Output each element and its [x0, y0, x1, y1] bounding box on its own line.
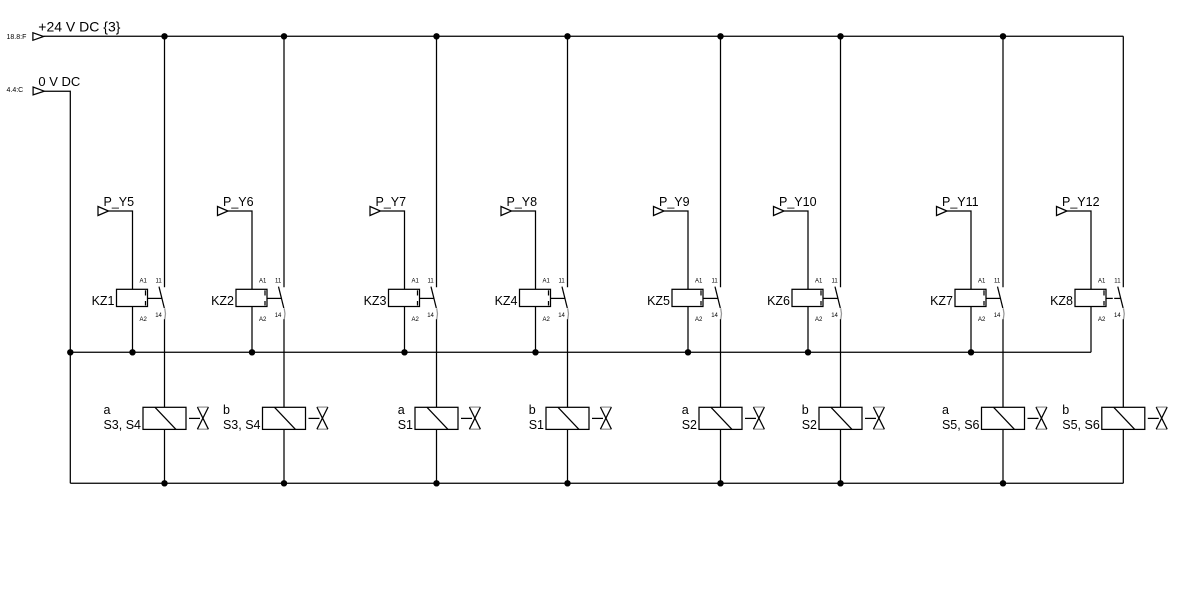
svg-text:KZ3: KZ3 — [364, 294, 387, 308]
svg-text:S2: S2 — [802, 418, 817, 432]
svg-text:14: 14 — [1114, 313, 1121, 319]
svg-text:S1: S1 — [398, 418, 413, 432]
svg-text:P_Y10: P_Y10 — [779, 195, 817, 209]
svg-text:KZ2: KZ2 — [211, 294, 234, 308]
svg-text:A2: A2 — [412, 317, 420, 323]
svg-text:S1: S1 — [529, 418, 544, 432]
svg-text:14: 14 — [558, 313, 565, 319]
svg-text:A2: A2 — [815, 317, 823, 323]
svg-text:KZ5: KZ5 — [647, 294, 670, 308]
svg-text:A2: A2 — [695, 317, 703, 323]
svg-text:A1: A1 — [543, 279, 551, 285]
svg-text:a: a — [398, 403, 405, 417]
svg-text:KZ6: KZ6 — [767, 294, 790, 308]
svg-text:14: 14 — [711, 313, 718, 319]
svg-text:KZ4: KZ4 — [495, 294, 518, 308]
svg-text:A1: A1 — [1098, 279, 1106, 285]
svg-text:S2: S2 — [682, 418, 697, 432]
svg-text:A1: A1 — [695, 279, 703, 285]
svg-text:+24 V DC {3}: +24 V DC {3} — [38, 18, 120, 34]
svg-text:4.4:C: 4.4:C — [7, 87, 24, 94]
svg-text:A2: A2 — [543, 317, 551, 323]
svg-text:P_Y12: P_Y12 — [1062, 195, 1100, 209]
svg-text:11: 11 — [275, 279, 282, 285]
svg-text:A2: A2 — [1098, 317, 1106, 323]
svg-text:A1: A1 — [978, 279, 986, 285]
svg-text:a: a — [942, 403, 949, 417]
svg-text:A2: A2 — [259, 317, 267, 323]
svg-text:b: b — [802, 403, 809, 417]
svg-text:A1: A1 — [140, 279, 148, 285]
svg-text:b: b — [529, 403, 536, 417]
svg-text:KZ8: KZ8 — [1050, 294, 1073, 308]
svg-text:P_Y6: P_Y6 — [223, 195, 254, 209]
svg-text:A1: A1 — [412, 279, 420, 285]
svg-text:11: 11 — [156, 279, 163, 285]
svg-text:a: a — [104, 403, 111, 417]
svg-text:11: 11 — [428, 279, 435, 285]
svg-text:A2: A2 — [140, 317, 148, 323]
svg-text:14: 14 — [831, 313, 838, 319]
svg-text:P_Y11: P_Y11 — [942, 195, 979, 209]
svg-text:11: 11 — [994, 279, 1001, 285]
svg-text:b: b — [1062, 403, 1069, 417]
svg-text:P_Y8: P_Y8 — [507, 195, 538, 209]
svg-text:b: b — [223, 403, 230, 417]
svg-text:0 V DC: 0 V DC — [38, 74, 80, 89]
svg-text:18.8:F: 18.8:F — [7, 34, 27, 41]
svg-text:KZ1: KZ1 — [92, 294, 115, 308]
svg-text:14: 14 — [275, 313, 282, 319]
svg-text:S5, S6: S5, S6 — [1062, 418, 1100, 432]
svg-text:a: a — [682, 403, 689, 417]
svg-text:14: 14 — [155, 313, 162, 319]
svg-text:11: 11 — [712, 279, 719, 285]
svg-text:S3, S4: S3, S4 — [103, 418, 141, 432]
svg-text:P_Y9: P_Y9 — [659, 195, 690, 209]
svg-text:S5, S6: S5, S6 — [942, 418, 980, 432]
svg-text:11: 11 — [1114, 279, 1121, 285]
svg-text:A1: A1 — [259, 279, 267, 285]
svg-text:A2: A2 — [978, 317, 986, 323]
svg-text:14: 14 — [427, 313, 434, 319]
svg-text:P_Y7: P_Y7 — [376, 195, 407, 209]
svg-text:11: 11 — [832, 279, 839, 285]
svg-text:S3, S4: S3, S4 — [223, 418, 261, 432]
svg-text:KZ7: KZ7 — [930, 294, 953, 308]
svg-text:A1: A1 — [815, 279, 823, 285]
svg-text:P_Y5: P_Y5 — [104, 195, 135, 209]
svg-text:11: 11 — [559, 279, 566, 285]
svg-text:14: 14 — [994, 313, 1001, 319]
